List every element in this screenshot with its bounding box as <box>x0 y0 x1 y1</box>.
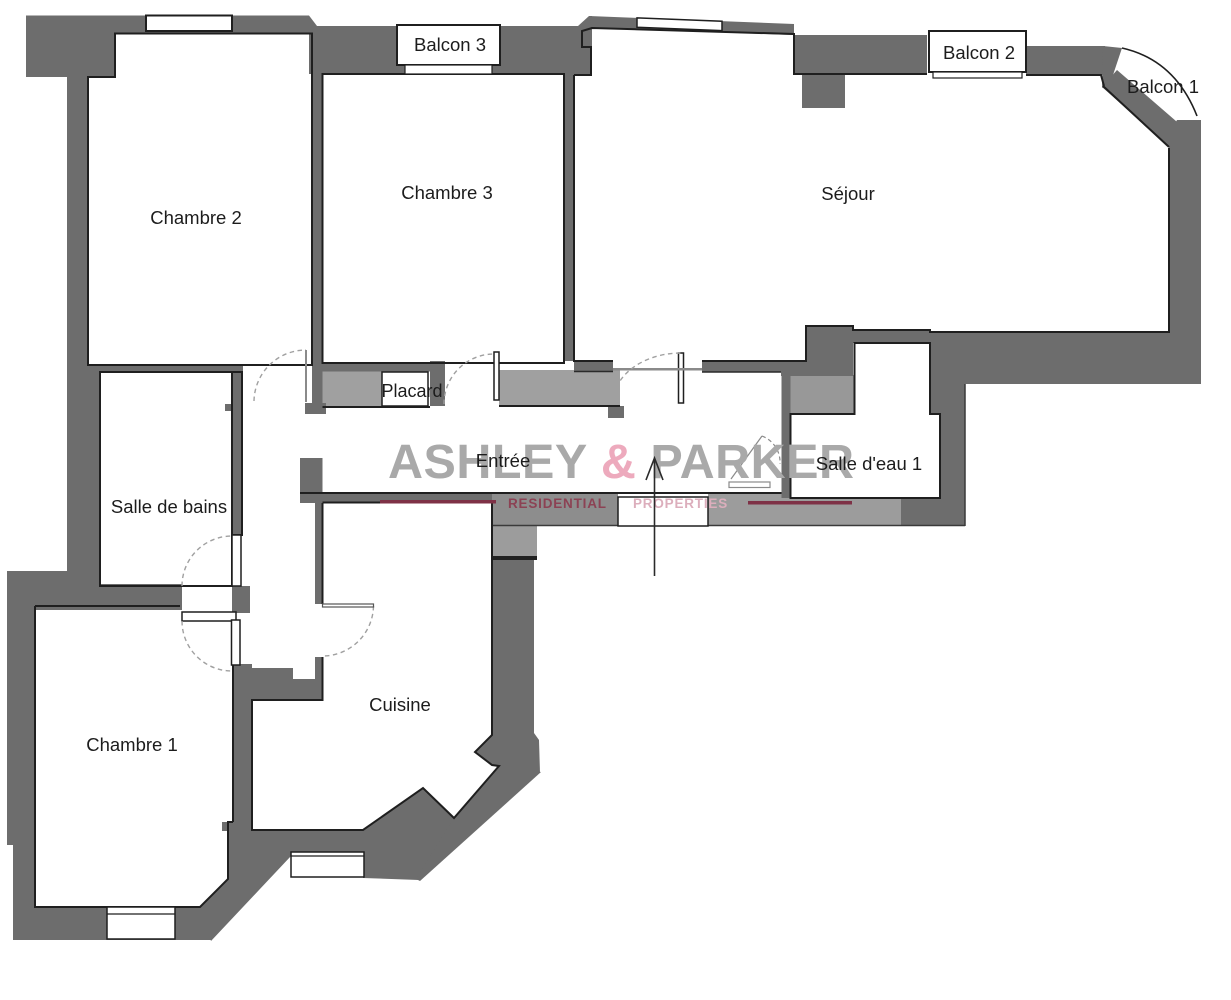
svg-text:PROPERTIES: PROPERTIES <box>633 496 728 511</box>
svg-text:Chambre 1: Chambre 1 <box>86 734 178 755</box>
svg-text:RESIDENTIAL: RESIDENTIAL <box>508 496 607 511</box>
svg-text:ASHLEY & PARKER: ASHLEY & PARKER <box>388 435 855 489</box>
svg-text:Placard: Placard <box>381 381 442 401</box>
svg-text:Balcon 3: Balcon 3 <box>414 34 486 55</box>
svg-text:Séjour: Séjour <box>821 183 874 204</box>
svg-text:Salle d'eau 1: Salle d'eau 1 <box>816 453 922 474</box>
svg-text:Chambre 2: Chambre 2 <box>150 207 242 228</box>
svg-text:Chambre 3: Chambre 3 <box>401 182 493 203</box>
svg-text:Salle de bains: Salle de bains <box>111 496 227 517</box>
svg-text:Cuisine: Cuisine <box>369 694 431 715</box>
svg-text:Entrée: Entrée <box>476 450 531 471</box>
svg-text:Balcon 1: Balcon 1 <box>1127 76 1199 97</box>
svg-text:Balcon 2: Balcon 2 <box>943 42 1015 63</box>
